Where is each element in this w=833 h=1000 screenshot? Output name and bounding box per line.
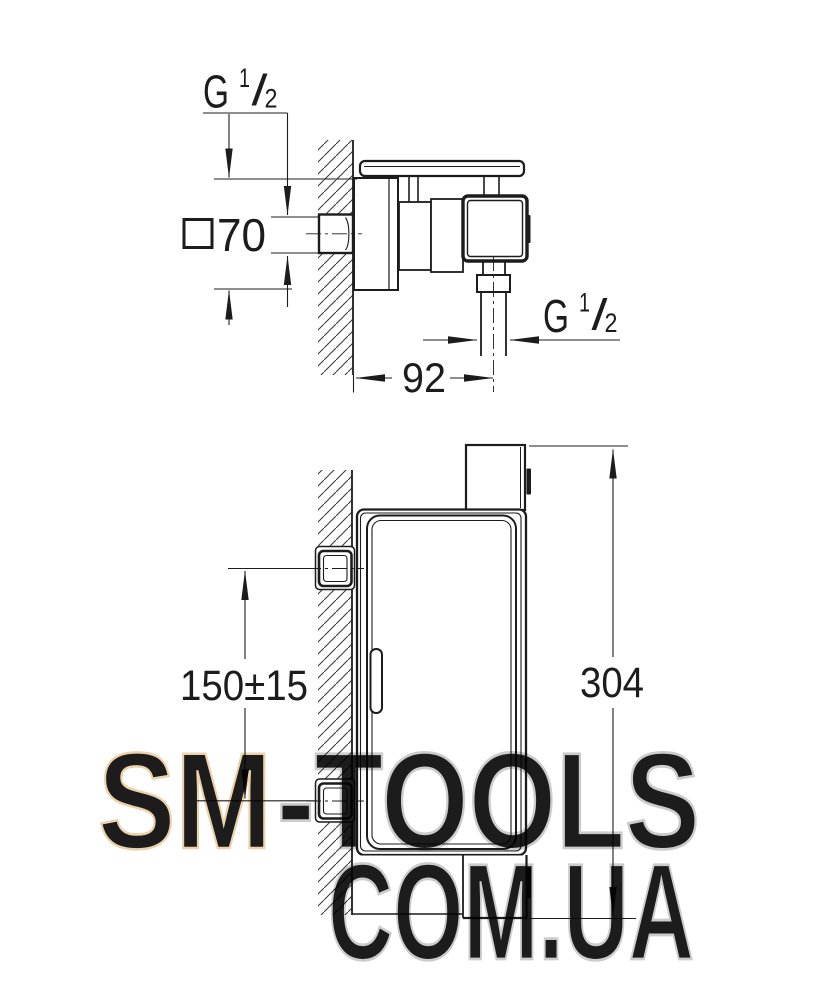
svg-text:1: 1 [579, 288, 590, 318]
technical-drawing-page: 70 92 G 1 / 2 G 1 / 2 [0, 0, 833, 1000]
body-section-front [431, 199, 463, 272]
svg-text:2: 2 [265, 84, 278, 114]
svg-text:2: 2 [605, 308, 618, 338]
grip-slot [371, 649, 383, 713]
wall-hatching-side [318, 140, 353, 375]
handle-tab-side [527, 215, 531, 243]
outlet-thread-label: G 1 / 2 [543, 288, 618, 343]
watermark-brand-primary: SM [98, 725, 272, 878]
svg-text:1: 1 [239, 63, 250, 93]
wall-offset-dim-text: 92 [402, 354, 446, 401]
handle-knob-side [463, 196, 527, 261]
handle-tab-front [527, 469, 532, 495]
shower-mixer-dimension-diagram: 70 92 G 1 / 2 G 1 / 2 [0, 0, 833, 1000]
inlet-thread-label: G 1 / 2 [203, 63, 278, 118]
store-watermark: SM -TOOLS COM.UA [98, 725, 700, 989]
square-symbol-icon [184, 220, 212, 248]
upper-union-front [316, 547, 355, 590]
handle-knob-front [466, 445, 525, 510]
body-section-rear [399, 202, 431, 270]
svg-text:G: G [203, 66, 229, 118]
watermark-domain: COM.UA [328, 836, 694, 989]
escutcheon-dim-text: 70 [217, 209, 266, 261]
overall-height-dim-text: 304 [580, 659, 644, 707]
svg-text:G: G [543, 290, 569, 342]
shelf-side [360, 161, 524, 176]
inlet-spacing-dim-text: 150±15 [180, 662, 308, 710]
